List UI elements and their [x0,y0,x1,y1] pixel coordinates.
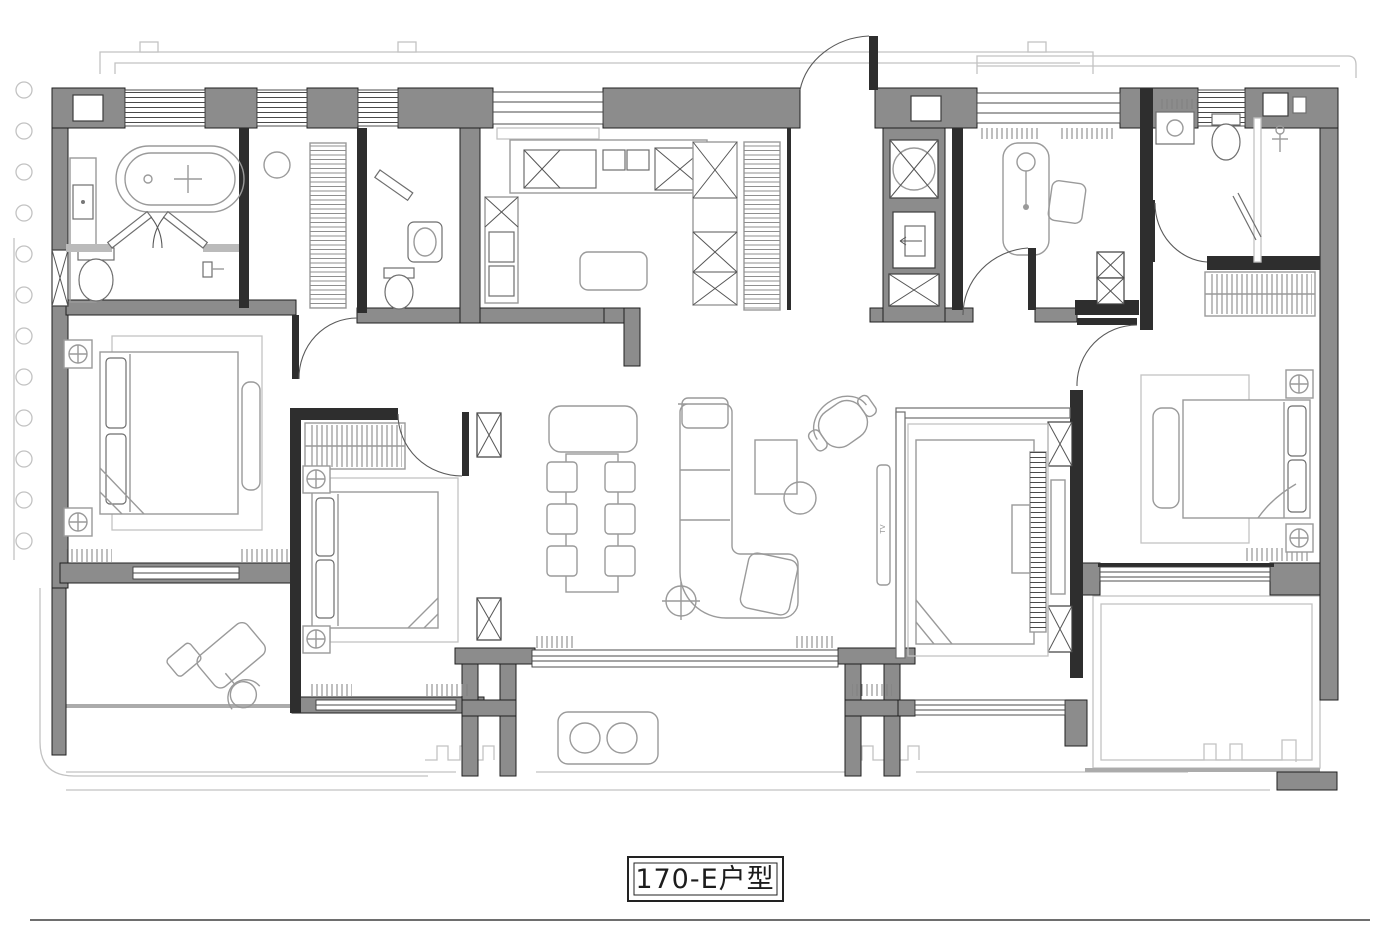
desk-lamp [1017,153,1035,171]
nightstand [64,340,92,368]
nightstand [1286,370,1313,398]
dining-chair [605,462,635,492]
corner-desk-nook [165,606,288,729]
central-balcony [558,712,658,764]
armchair [799,382,884,461]
nightstand [303,626,330,653]
study-window [977,93,1120,139]
kitchen-tall-cabinets [693,142,737,305]
bedroom2 [303,412,469,653]
appliance-tower [485,197,518,303]
utility-shaft [889,140,939,306]
bath-toilet [1212,114,1240,160]
bath-sink [1156,112,1194,144]
corner-shaft-box [911,96,941,121]
wc-toilet [384,268,414,309]
kitchen-counter [510,140,707,193]
bed [916,440,1046,644]
master-bathroom [66,146,244,302]
bed [1183,400,1310,518]
mirror [375,170,413,200]
living-dining [547,382,884,620]
bathtub [116,146,244,212]
roof-overhang [100,42,1356,78]
bathroom-right [1148,112,1288,262]
sofa [678,398,799,618]
bedroom3: TV [877,408,1070,658]
kitchen-island [580,252,647,290]
study-door [963,248,1036,315]
dining-chair [547,462,577,492]
master-bottom-window [133,567,239,579]
nightstand [1286,524,1313,552]
laundry-sinks [558,712,658,764]
kitchen [485,140,737,305]
side-cabinet [1051,480,1065,594]
glazed-partition [896,408,1070,418]
bedroom-door [1077,318,1137,386]
column-x [1048,606,1072,652]
nightstand [303,466,330,493]
wc-left [375,170,442,309]
round-table [784,482,816,514]
column-x [477,598,501,640]
bed [312,492,438,628]
bedroom2-window [316,700,456,710]
shower [1233,118,1288,262]
louver-window [257,90,307,126]
entry [744,36,878,310]
unit-label-text: 170-E户型 [635,864,774,895]
left-facade-scallops [14,82,32,560]
laundry-basket [264,152,290,178]
dining-chair [547,504,577,534]
bedroom3-window [915,700,1065,715]
louver-window [358,90,398,126]
bedroom2-door [398,412,469,476]
closet-shelving [310,143,346,308]
unit-label: 170-E户型 [628,857,783,901]
nightstand [64,508,92,536]
living-window [532,650,838,667]
floor-plan: TV 170-E户型 [0,0,1400,933]
pantry-shelves [744,142,780,310]
study [963,143,1087,315]
dining-chair [547,546,577,576]
walk-in-closet [264,143,346,308]
column-x [1097,252,1124,304]
louver-window [125,90,205,126]
dining-chair [605,504,635,534]
glass-wall [896,412,905,658]
corner-shaft-box [73,95,103,121]
shower-valve [203,262,224,277]
bed [100,352,238,514]
bed-bench [242,382,260,490]
threshold [203,244,239,252]
wardrobe [305,423,405,469]
corner-shaft-box [1263,93,1306,116]
bench [1153,408,1179,508]
wardrobe [1205,272,1315,316]
column-x [477,413,501,457]
column-x [1048,422,1072,466]
dining-bench [549,406,637,452]
dining-set [547,406,637,592]
toilet [78,248,114,301]
desk-chair [1047,180,1086,224]
master-door [292,315,357,379]
dining-chair [605,546,635,576]
bedroom4-window [1100,567,1270,581]
tv: TV [877,465,890,585]
side-table [755,440,797,494]
kitchen-window [493,92,603,139]
tv-label: TV [879,524,887,534]
wc-sink [408,222,442,262]
toilet-tank-box [52,250,68,306]
double-swing-doors [108,212,208,248]
bath-door [1148,200,1207,262]
threshold [66,244,112,252]
